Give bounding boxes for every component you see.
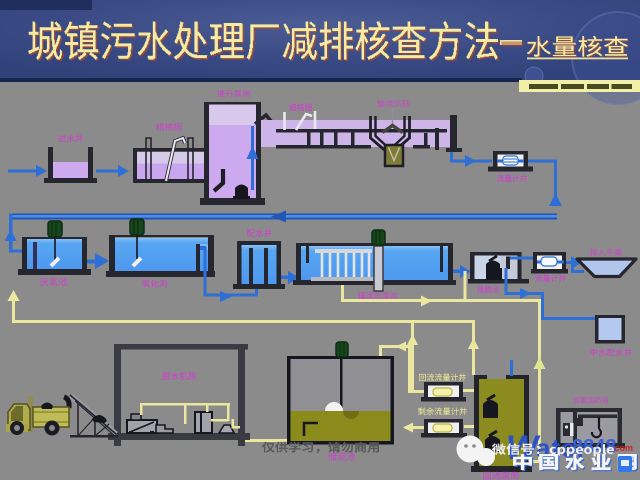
- svg-text:.com: .com: [612, 443, 633, 453]
